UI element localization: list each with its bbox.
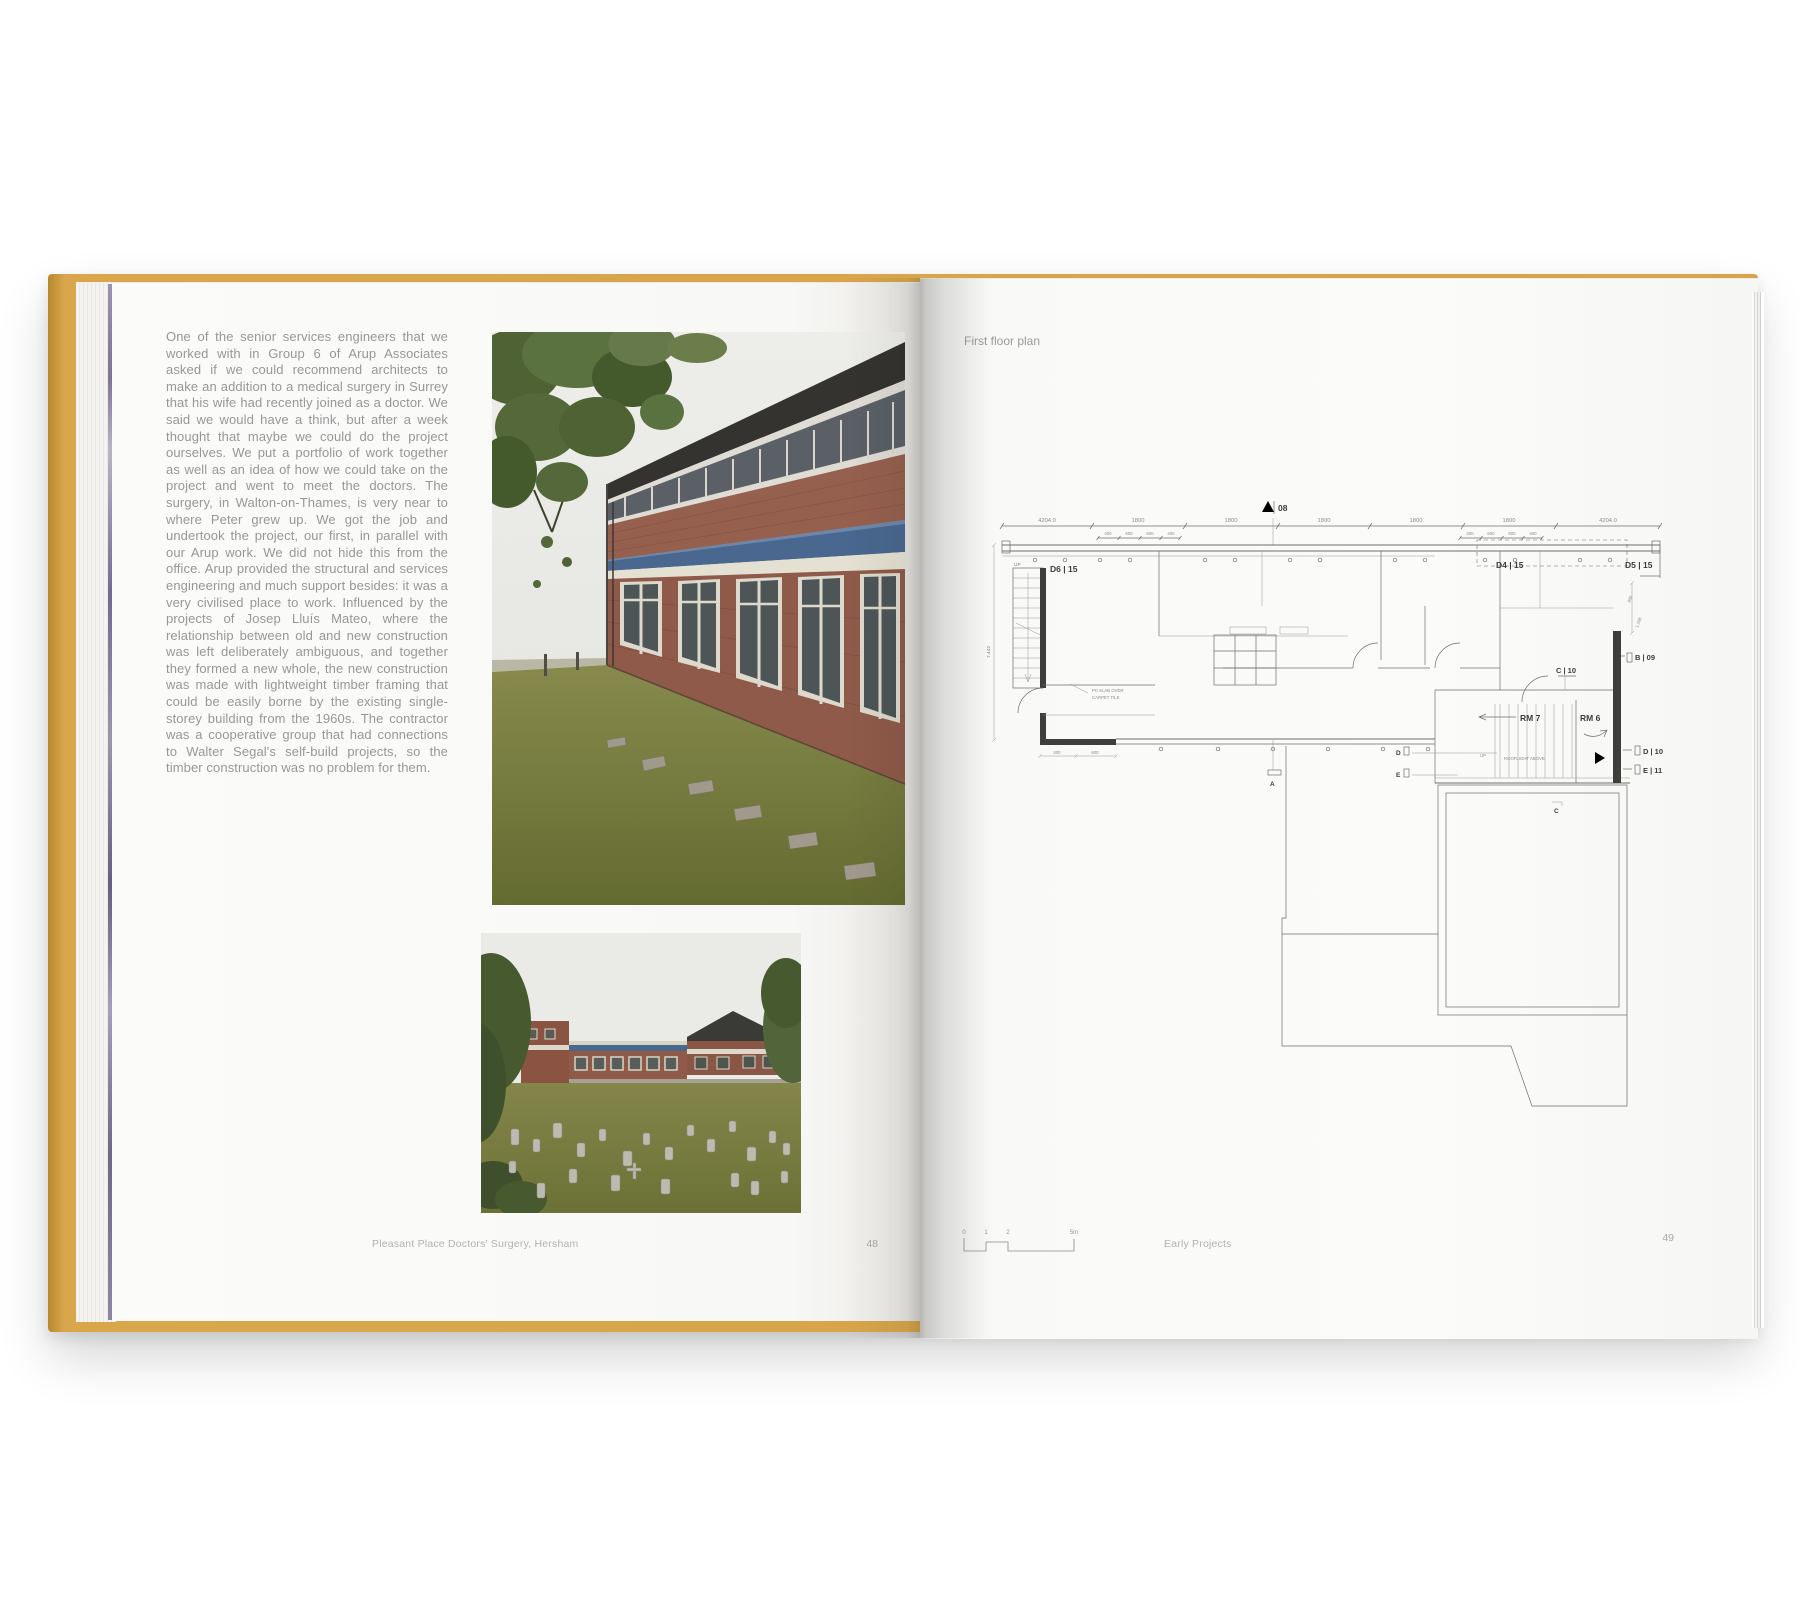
plan-tag: D | 10 xyxy=(1643,747,1663,756)
right-page-caption: Early Projects xyxy=(1164,1238,1232,1250)
floor-plan-drawing: 08 D6 | 15 D4 | 15 D5 | 15 B | 09 C | 10… xyxy=(980,488,1680,1128)
sub-dimension: 600 xyxy=(1146,531,1154,536)
sub-dimension: 400 xyxy=(1529,531,1537,536)
plan-note-up: UP xyxy=(1480,753,1486,758)
plan-note-floor: CARPET TILE xyxy=(1092,695,1120,700)
plan-tag: D5 | 15 xyxy=(1625,560,1653,570)
sub-dimension: 600 xyxy=(1508,531,1516,536)
right-page-edge-stack xyxy=(1752,292,1764,1328)
room-label: RM 7 xyxy=(1520,713,1541,723)
dimension-vertical: 1.206 xyxy=(1634,616,1643,628)
dimension: 4204.0 xyxy=(1038,518,1056,524)
sub-dimension: 400 xyxy=(1104,531,1112,536)
plan-tag: E | 11 xyxy=(1643,766,1662,775)
scale-tick-label: 1 xyxy=(984,1230,988,1236)
plan-note-rooflight: ROOFLIGHT ABOVE xyxy=(1504,756,1545,761)
plan-tag: D4 | 15 xyxy=(1496,560,1524,570)
room-label: RM 6 xyxy=(1580,713,1601,723)
photo-surgery-building xyxy=(492,332,905,905)
dimension: 1800 xyxy=(1318,518,1331,524)
dimension: 1800 xyxy=(1225,518,1238,524)
sub-dimension: 600 xyxy=(1125,531,1133,536)
section-triangle xyxy=(1262,501,1274,512)
plan-linework xyxy=(992,501,1662,1106)
dimension-vertical: 400 xyxy=(1626,594,1633,603)
dimension: 1800 xyxy=(1503,518,1516,524)
plan-tag: C | 10 xyxy=(1556,666,1576,675)
section-marker-top: 08 xyxy=(1278,503,1288,513)
body-text-column: One of the senior services engineers tha… xyxy=(166,329,448,777)
sub-dimension: 600 xyxy=(1487,531,1495,536)
sub-dimension: 400 xyxy=(1466,531,1474,536)
plan-tag: B | 09 xyxy=(1635,653,1655,662)
section-marker: A xyxy=(1270,781,1275,788)
scale-tick-label: 0 xyxy=(962,1230,966,1236)
plan-note-floor: PC SLAB OVER xyxy=(1092,688,1124,693)
sub-dimension: 600 xyxy=(1091,750,1099,755)
scale-tick-label: 5m xyxy=(1070,1230,1078,1236)
plan-note-up: UP xyxy=(1014,562,1021,568)
section-marker: E xyxy=(1396,772,1401,779)
section-marker: C xyxy=(1554,808,1559,815)
dimension: 1800 xyxy=(1410,518,1423,524)
right-page-number: 49 xyxy=(1630,1232,1674,1244)
sub-dimension: 400 xyxy=(1053,750,1061,755)
dimension: 4204.0 xyxy=(1599,518,1617,524)
dimension-vertical: 7.442 xyxy=(986,646,992,658)
plan-title: First floor plan xyxy=(964,334,1040,348)
scale-tick-label: 2 xyxy=(1006,1230,1010,1236)
scale-bar: 0 1 2 5m xyxy=(962,1226,1086,1256)
sub-dimension: 400 xyxy=(1167,531,1175,536)
book-spread-photo: One of the senior services engineers tha… xyxy=(0,0,1800,1600)
left-page-caption: Pleasant Place Doctors' Surgery, Hersham xyxy=(372,1238,578,1250)
dimension: 1800 xyxy=(1132,518,1145,524)
left-page-number: 48 xyxy=(840,1238,878,1250)
section-marker: D xyxy=(1396,750,1401,757)
plan-tag: D6 | 15 xyxy=(1050,564,1078,574)
photo-cemetery-view xyxy=(481,933,801,1213)
